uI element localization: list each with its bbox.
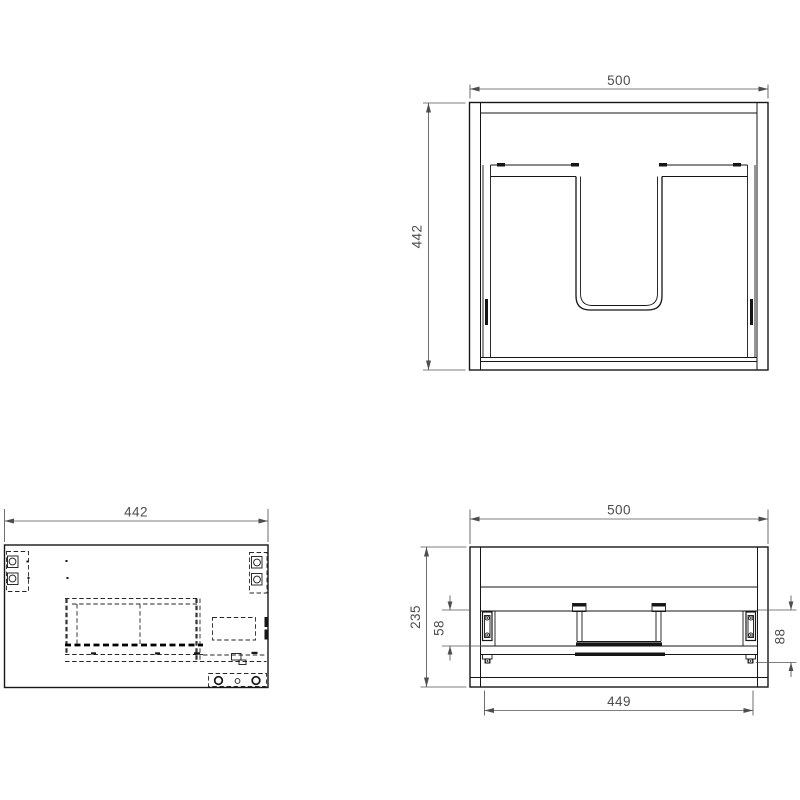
dimension-label-rear-height: 235 xyxy=(408,605,423,629)
panel-tick xyxy=(485,299,488,325)
back-cutout-hidden xyxy=(213,618,256,641)
rear-view-outer-edge xyxy=(470,547,768,687)
dimension-label-slide-height: 58 xyxy=(432,620,447,636)
dimension-inner-width: 449 xyxy=(485,691,754,716)
drawer-slide-bracket-right xyxy=(743,612,756,664)
panel-tick xyxy=(750,299,753,325)
dimension-plan-depth: 442 xyxy=(410,103,466,370)
dimension-right-offset: 88 xyxy=(756,596,797,678)
dimension-label-plan-depth: 442 xyxy=(410,225,425,249)
dimension-side-width: 442 xyxy=(5,505,269,543)
side-view-drawer-mechanism-hidden-lines xyxy=(65,599,268,665)
technical-drawing-canvas: 500 442 xyxy=(0,0,800,800)
top-view-walls xyxy=(481,103,758,371)
sink-cutout-outer xyxy=(576,177,662,311)
top-view-side-panels xyxy=(483,165,755,358)
rear-view-walls-rails xyxy=(470,547,768,687)
mount-tab xyxy=(659,163,667,167)
rail-center-strip xyxy=(575,653,665,657)
dimension-label-plan-width: 500 xyxy=(607,73,631,88)
dimension-rear-height: 235 xyxy=(408,547,467,687)
dimension-slide-height: 58 xyxy=(432,596,483,661)
rear-view: 500 235 58 88 449 xyxy=(408,503,797,716)
dimension-label-rear-width: 500 xyxy=(607,503,631,518)
top-view: 500 442 xyxy=(410,73,769,370)
dimension-label-right-offset: 88 xyxy=(773,629,788,645)
dimension-label-side-width: 442 xyxy=(124,505,148,520)
dimension-plan-width: 500 xyxy=(470,73,768,99)
top-view-outer-edge xyxy=(470,103,769,371)
top-view-cabinet-outline xyxy=(470,103,769,371)
top-view-drawer-edges xyxy=(491,165,748,177)
side-view-corner-bracket-left xyxy=(7,552,29,592)
side-view-corner-bracket-right xyxy=(250,553,268,594)
drawer-slide-bracket-left xyxy=(483,612,496,664)
side-view: 442 xyxy=(5,505,269,688)
dimension-label-inner-width: 449 xyxy=(607,694,631,709)
latch-detail xyxy=(232,652,258,665)
screw-hole-marks xyxy=(27,560,69,579)
sink-cutout-inner xyxy=(581,177,658,306)
side-view-hinge-plate xyxy=(209,674,267,687)
mount-tab xyxy=(571,163,579,167)
mount-tab xyxy=(497,163,505,167)
dimension-rear-width: 500 xyxy=(470,503,768,545)
side-view-outer-edge xyxy=(5,545,269,688)
mount-tab xyxy=(733,163,741,167)
